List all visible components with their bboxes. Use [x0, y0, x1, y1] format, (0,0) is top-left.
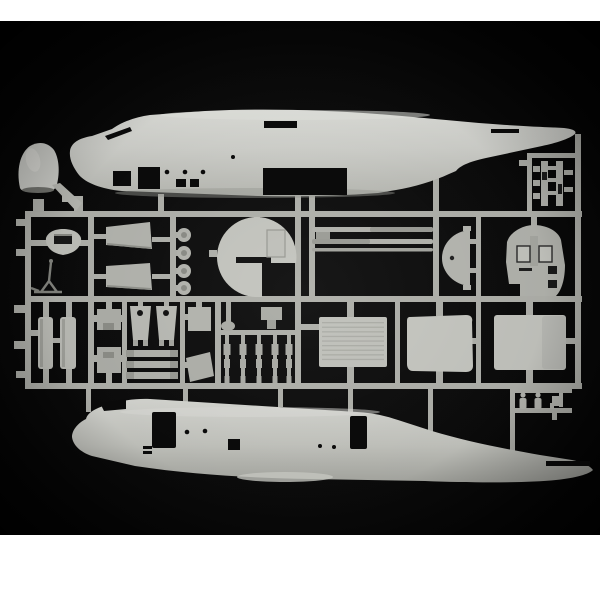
product-photo [0, 0, 600, 600]
sprue-photo-canvas [0, 0, 600, 600]
photo-margin-bottom [0, 535, 600, 600]
photo-vignette [0, 21, 600, 535]
photo-margin-top [0, 0, 600, 21]
